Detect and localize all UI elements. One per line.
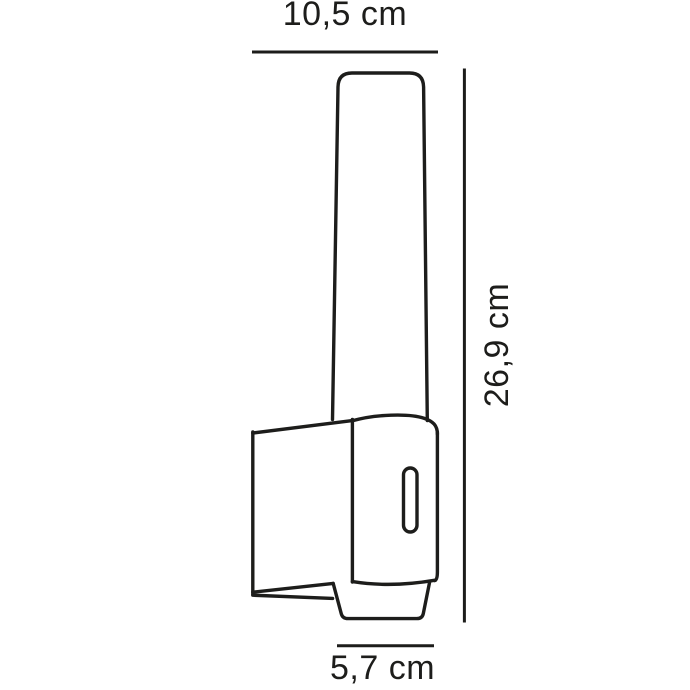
base-cup-outline bbox=[333, 582, 429, 618]
dimension-diagram: 10,5 cm 26,9 cm 5,7 cm bbox=[0, 0, 690, 690]
bracket-underside-far-edge bbox=[253, 583, 333, 592]
bracket-underside-near-edge bbox=[253, 595, 333, 598]
bracket-side-top-edge bbox=[253, 421, 353, 433]
height-dimension-label: 26,9 cm bbox=[477, 260, 517, 430]
bracket-front-top-edge bbox=[352, 415, 437, 434]
depth-dimension-label: 5,7 cm bbox=[330, 651, 435, 685]
lamp-technical-drawing bbox=[0, 0, 690, 690]
lamp-shade-outline bbox=[333, 73, 428, 421]
width-dimension-label: 10,5 cm bbox=[252, 0, 438, 31]
bracket-slot bbox=[404, 468, 418, 532]
bracket-front-right-edge bbox=[435, 432, 438, 581]
bracket-front-bottom-edge bbox=[352, 580, 435, 584]
